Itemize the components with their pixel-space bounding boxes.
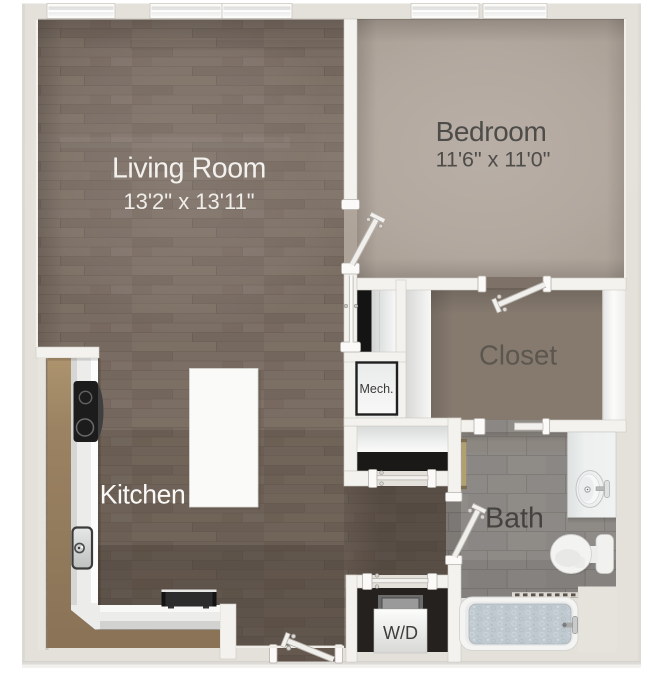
svg-text:Closet: Closet xyxy=(479,340,557,371)
svg-text:Mech.: Mech. xyxy=(359,382,393,396)
svg-text:Living Room: Living Room xyxy=(112,153,266,185)
svg-text:W/D: W/D xyxy=(383,623,418,643)
svg-text:13'2" x 13'11": 13'2" x 13'11" xyxy=(123,189,254,214)
svg-text:Bath: Bath xyxy=(485,503,544,535)
svg-text:Kitchen: Kitchen xyxy=(100,480,186,510)
svg-text:Bedroom: Bedroom xyxy=(436,116,547,147)
svg-text:11'6" x 11'0": 11'6" x 11'0" xyxy=(436,148,551,172)
